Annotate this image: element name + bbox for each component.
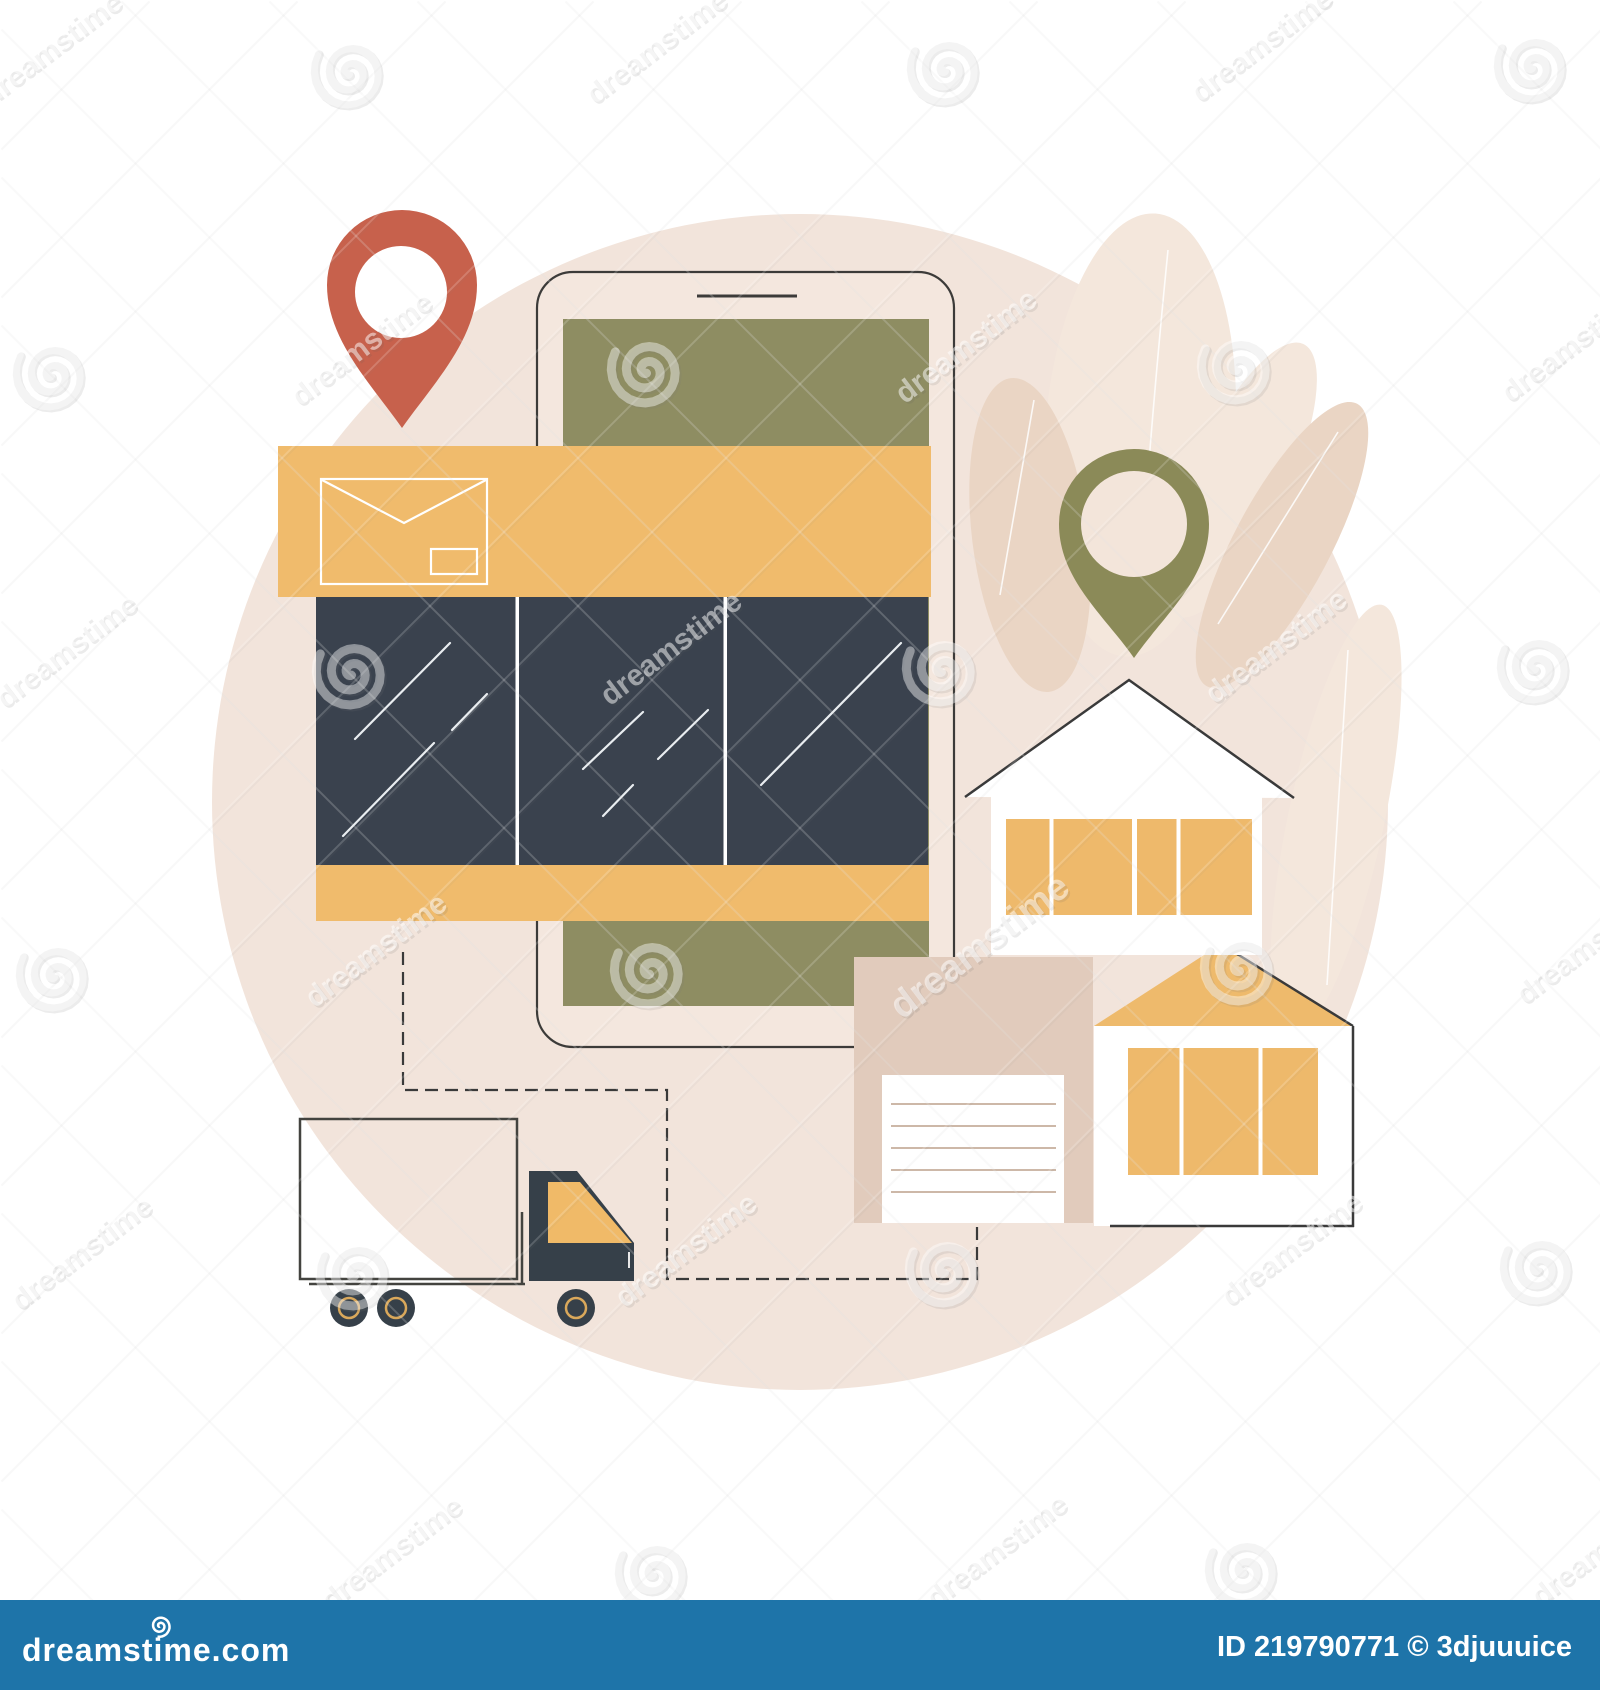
svg-text:dreamstime.com: dreamstime.com bbox=[22, 1632, 290, 1668]
svg-text:ID 219790771 © 3djuuuice: ID 219790771 © 3djuuuice bbox=[1217, 1631, 1572, 1663]
